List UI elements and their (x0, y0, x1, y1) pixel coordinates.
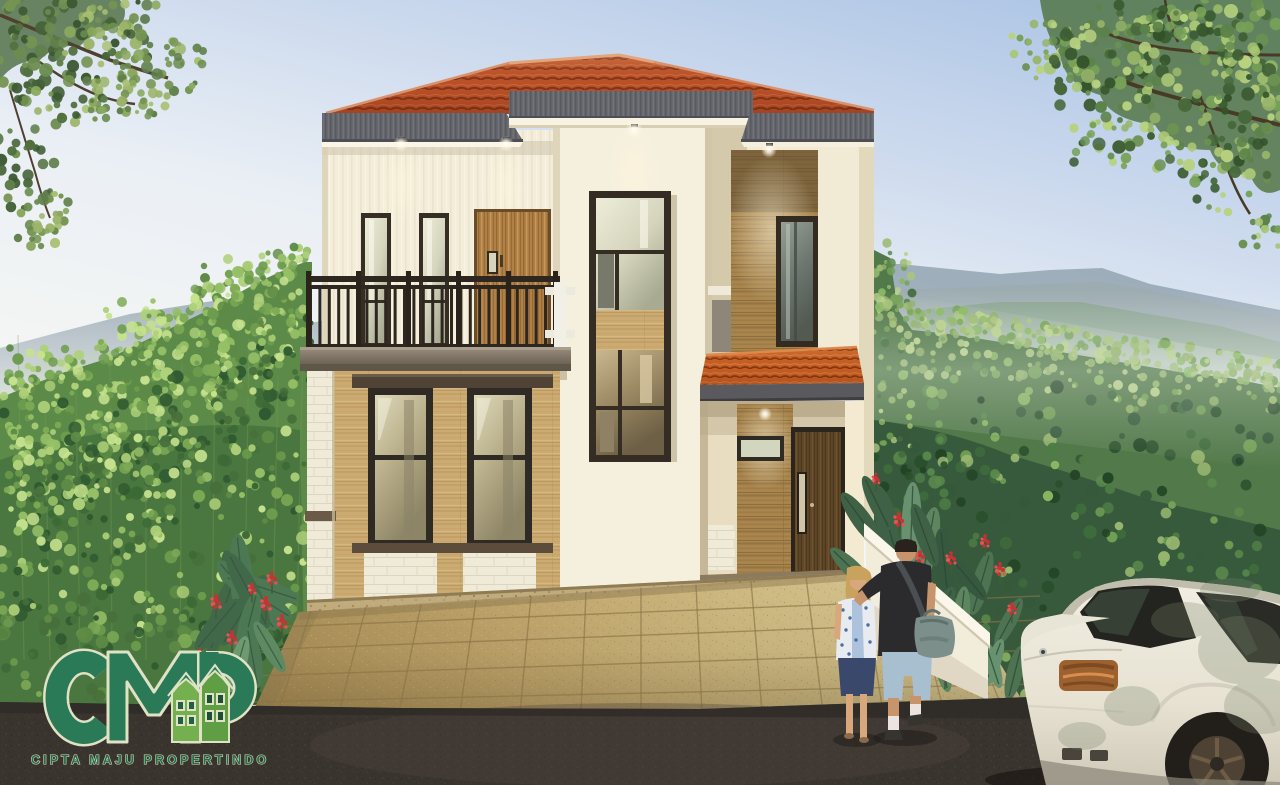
svg-text:CIPTA MAJU PROPERTINDO: CIPTA MAJU PROPERTINDO (31, 753, 269, 767)
